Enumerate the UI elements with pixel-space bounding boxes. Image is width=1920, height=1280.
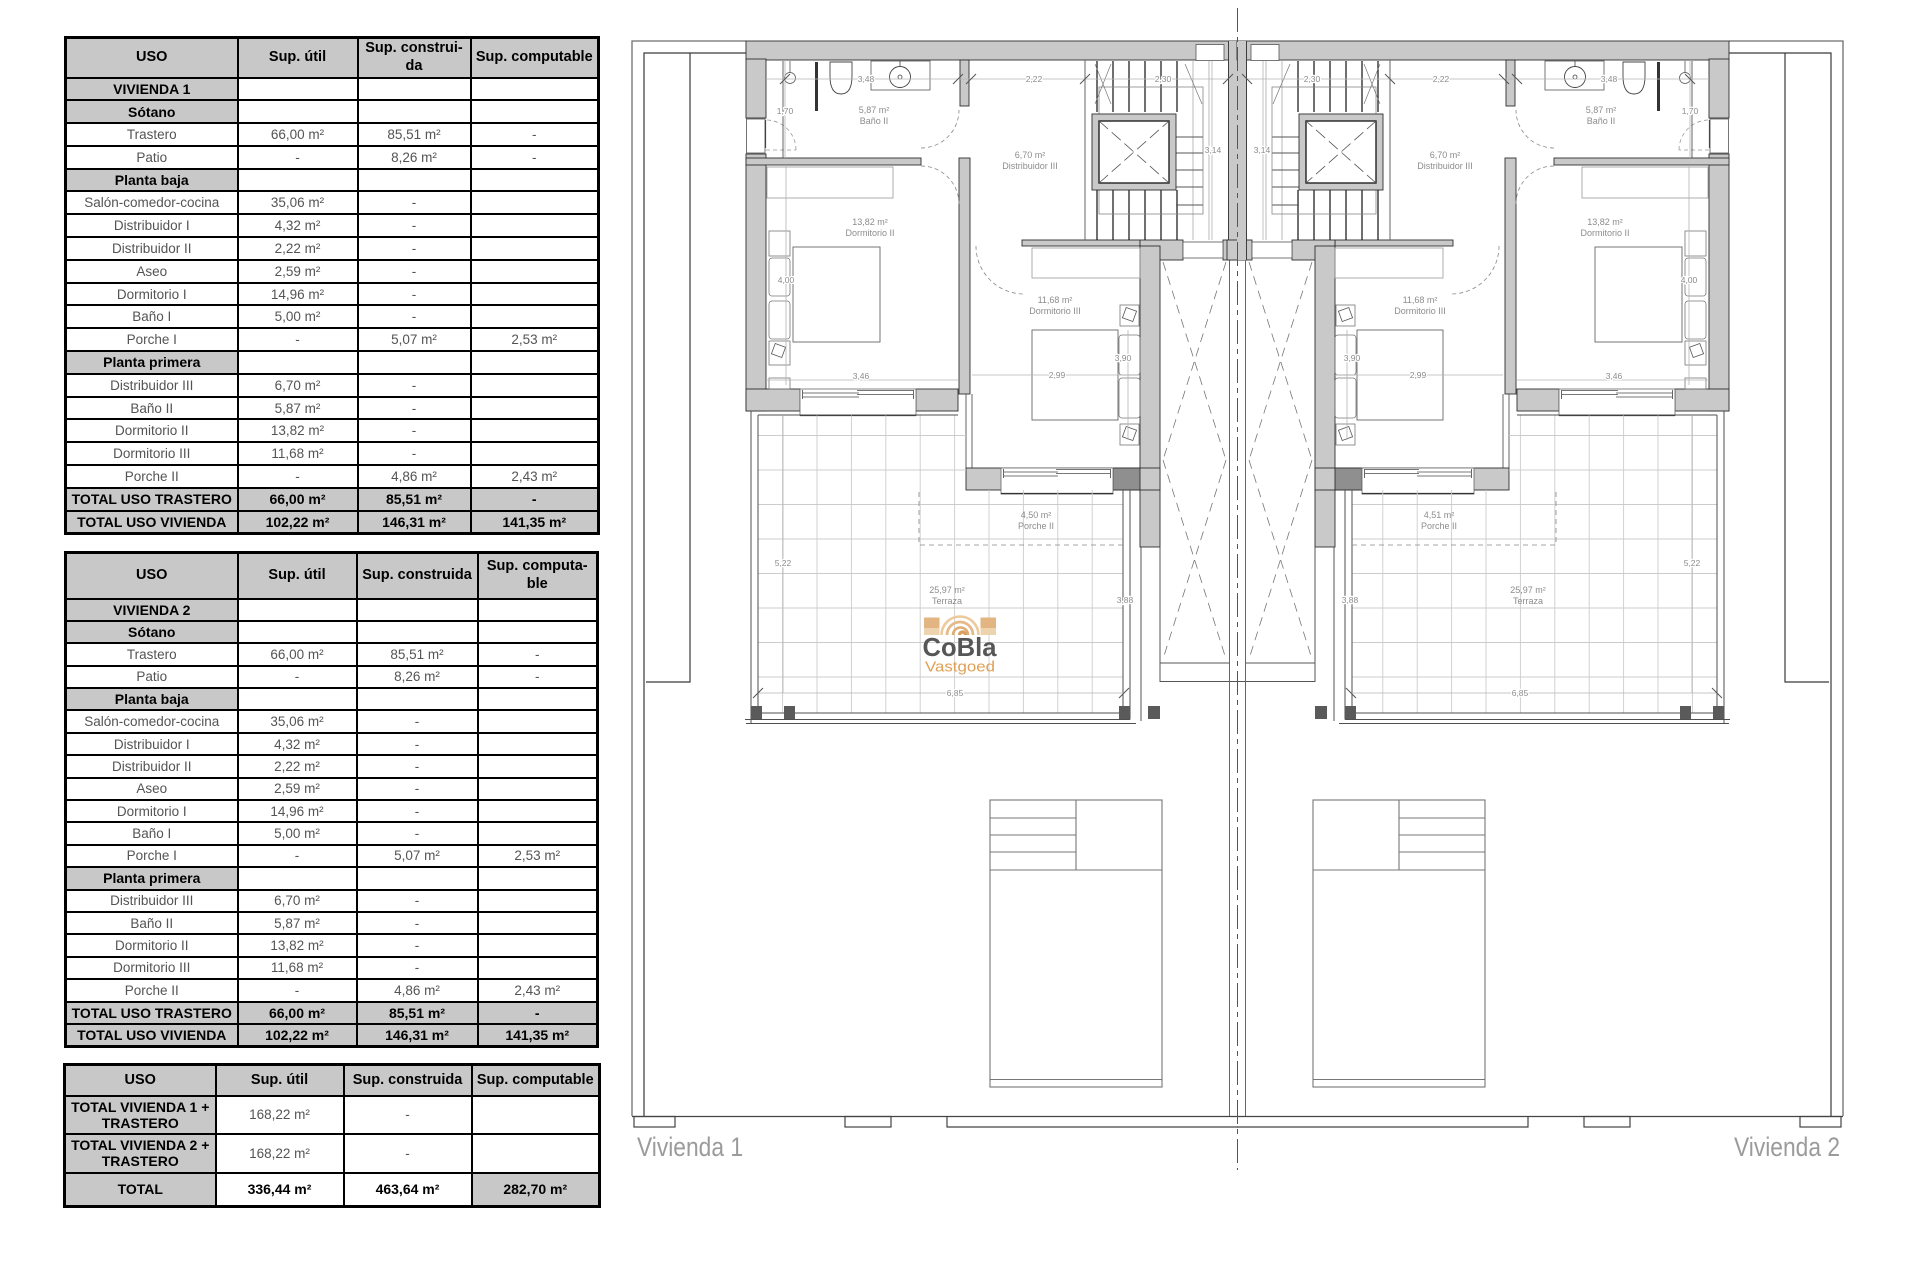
svg-text:Dormitorio III: Dormitorio III (1394, 306, 1446, 316)
svg-text:3,90: 3,90 (1115, 353, 1132, 363)
svg-text:2,30: 2,30 (1155, 74, 1172, 84)
svg-text:3,48: 3,48 (1601, 74, 1618, 84)
svg-text:5,87 m²: 5,87 m² (1586, 105, 1617, 115)
svg-text:2,99: 2,99 (1410, 370, 1427, 380)
svg-text:6,85: 6,85 (1512, 688, 1529, 698)
svg-text:25,97 m²: 25,97 m² (1510, 585, 1546, 595)
svg-text:Dormitorio II: Dormitorio II (845, 228, 894, 238)
svg-text:11,68 m²: 11,68 m² (1038, 295, 1073, 305)
svg-text:3,48: 3,48 (858, 74, 875, 84)
svg-text:3,88: 3,88 (1117, 595, 1134, 605)
svg-text:Baño II: Baño II (1587, 116, 1616, 126)
svg-text:2,30: 2,30 (1304, 74, 1321, 84)
svg-text:Vivienda 2: Vivienda 2 (1734, 1132, 1840, 1162)
svg-text:Dormitorio II: Dormitorio II (1580, 228, 1629, 238)
svg-text:13,82 m²: 13,82 m² (852, 217, 888, 227)
svg-text:CoBla: CoBla (923, 632, 998, 662)
svg-text:Terraza: Terraza (1513, 596, 1543, 606)
svg-text:1,70: 1,70 (777, 106, 794, 116)
svg-text:2,22: 2,22 (1026, 74, 1043, 84)
svg-text:Dormitorio III: Dormitorio III (1029, 306, 1081, 316)
svg-text:Vastgoed: Vastgoed (925, 659, 995, 676)
svg-text:Vivienda 1: Vivienda 1 (637, 1132, 743, 1162)
svg-text:3,14: 3,14 (1205, 145, 1222, 155)
svg-text:4,00: 4,00 (778, 275, 795, 285)
svg-text:6,70 m²: 6,70 m² (1015, 150, 1046, 160)
svg-text:Baño II: Baño II (860, 116, 889, 126)
svg-text:6,85: 6,85 (947, 688, 964, 698)
svg-text:3,46: 3,46 (853, 371, 870, 381)
svg-text:4,51 m²: 4,51 m² (1424, 510, 1455, 520)
svg-text:5,87 m²: 5,87 m² (859, 105, 890, 115)
svg-text:Distribuidor III: Distribuidor III (1417, 161, 1473, 171)
svg-text:4,00: 4,00 (1681, 275, 1698, 285)
svg-text:Terraza: Terraza (932, 596, 962, 606)
svg-text:11,68 m²: 11,68 m² (1403, 295, 1438, 305)
svg-text:Porche II: Porche II (1421, 521, 1457, 531)
svg-text:3,14: 3,14 (1254, 145, 1271, 155)
svg-text:Distribuidor III: Distribuidor III (1002, 161, 1058, 171)
svg-text:Porche II: Porche II (1018, 521, 1054, 531)
svg-text:5,22: 5,22 (775, 558, 792, 568)
svg-text:25,97 m²: 25,97 m² (929, 585, 965, 595)
svg-text:6,70 m²: 6,70 m² (1430, 150, 1461, 160)
svg-text:13,82 m²: 13,82 m² (1587, 217, 1623, 227)
svg-text:2,22: 2,22 (1433, 74, 1450, 84)
svg-text:4,50 m²: 4,50 m² (1021, 510, 1052, 520)
svg-text:3,88: 3,88 (1342, 595, 1359, 605)
svg-text:2,99: 2,99 (1049, 370, 1066, 380)
svg-text:1,70: 1,70 (1682, 106, 1699, 116)
svg-text:3,46: 3,46 (1606, 371, 1623, 381)
svg-text:3,90: 3,90 (1344, 353, 1361, 363)
svg-text:5,22: 5,22 (1684, 558, 1701, 568)
